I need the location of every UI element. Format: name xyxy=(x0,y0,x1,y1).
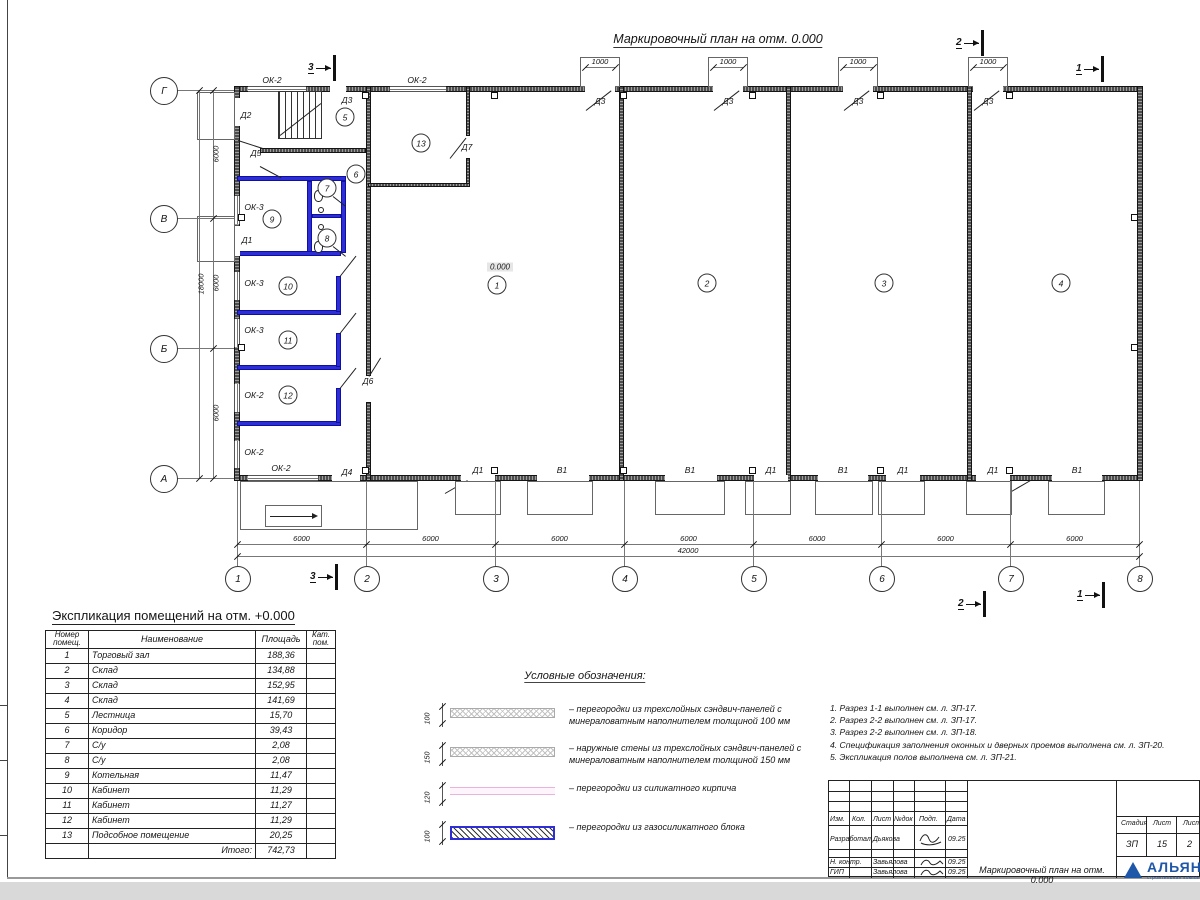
room-number-circle: 1 xyxy=(488,276,507,295)
legend-text: – перегородки из газосиликатного блока xyxy=(569,821,839,833)
col-area: Площадь xyxy=(256,631,307,649)
column-marker xyxy=(877,467,884,474)
section-marker-label: 1 xyxy=(1076,63,1082,75)
dim-line xyxy=(585,67,615,68)
legend-swatch-sandwich xyxy=(450,708,555,718)
section-marker-label: 1 xyxy=(1077,589,1083,601)
expl-cell: Коридор xyxy=(89,723,256,738)
expl-cell xyxy=(307,678,336,693)
plan-label: Д6 xyxy=(363,376,374,386)
dim-text-opening: 1000 xyxy=(980,57,997,66)
expl-cell: Лестница xyxy=(89,708,256,723)
stamp-name: Завьялова xyxy=(873,869,908,876)
fold-mark xyxy=(0,705,8,706)
col-cat: Кат. пом. xyxy=(307,631,336,649)
plan-label: Д7 xyxy=(462,142,473,152)
ramp-arrowhead xyxy=(312,513,318,519)
grid-bubble-col: 6 xyxy=(869,566,895,592)
expl-row: 3Склад152,95 xyxy=(46,678,336,693)
expl-cell: 188,36 xyxy=(256,648,307,663)
expl-cell: Торговый зал xyxy=(89,648,256,663)
expl-cell: Склад xyxy=(89,663,256,678)
expl-cell: 2 xyxy=(46,663,89,678)
room-number-circle: 3 xyxy=(875,274,894,293)
dim-text-bay: 6000 xyxy=(422,534,439,543)
plan-label: Д3 xyxy=(342,95,353,105)
stamp-col: Изм. xyxy=(830,816,845,823)
plan-label: Д2 xyxy=(241,110,252,120)
dim-text-bay: 6000 xyxy=(212,405,221,422)
grid-extension-line xyxy=(177,218,234,219)
company-logo: АЛЬЯНС строительная компания xyxy=(1124,859,1200,880)
section-marker-label: 2 xyxy=(958,598,964,610)
column-marker xyxy=(1131,214,1138,221)
expl-header-row: Номер помещ. Наименование Площадь Кат. п… xyxy=(46,631,336,649)
plan-label: В1 xyxy=(557,465,567,475)
section-marker: 3 xyxy=(310,564,338,590)
expl-cell: Склад xyxy=(89,693,256,708)
grid-extension-line xyxy=(1010,481,1011,566)
partition xyxy=(967,86,972,481)
expl-row: 8С/у2,08 xyxy=(46,753,336,768)
total-value: 742,73 xyxy=(256,843,307,858)
porch xyxy=(1048,481,1105,515)
expl-cell xyxy=(307,738,336,753)
room-number-circle: 12 xyxy=(279,386,298,405)
expl-cell: Подсобное помещение xyxy=(89,828,256,843)
stage-label: Лист xyxy=(1153,820,1171,827)
room-number-circle: 4 xyxy=(1052,274,1071,293)
room-number-circle: 9 xyxy=(263,210,282,229)
expl-row: 5Лестница15,70 xyxy=(46,708,336,723)
fold-mark xyxy=(0,835,8,836)
grid-extension-line xyxy=(237,481,238,566)
expl-cell: С/у xyxy=(89,738,256,753)
door-leaf xyxy=(340,256,357,277)
partition-room13 xyxy=(466,86,470,136)
section-arrow-icon xyxy=(966,604,981,605)
logo-subtitle: строительная компания xyxy=(1147,875,1200,880)
dim-text-bay: 6000 xyxy=(937,534,954,543)
plan-label: В1 xyxy=(685,465,695,475)
section-marker-label: 3 xyxy=(310,571,316,583)
note-line: 3. Разрез 2-2 выполнен см. л. ЗП-18. xyxy=(830,726,1165,738)
expl-cell xyxy=(307,783,336,798)
door-leaf xyxy=(586,90,612,110)
section-marker: 1 xyxy=(1077,582,1105,608)
expl-cell: 13 xyxy=(46,828,89,843)
plan-label: В1 xyxy=(838,465,848,475)
note-line: 1. Разрез 1-1 выполнен см. л. ЗП-17. xyxy=(830,702,1165,714)
plan-label: Д1 xyxy=(988,465,999,475)
expl-cell xyxy=(307,798,336,813)
legend: 100– перегородки из трехслойных сэндвич-… xyxy=(424,703,839,860)
stamp-role: Н. контр. xyxy=(830,859,862,866)
plan-label: ОК-2 xyxy=(407,75,426,85)
grid-bubble-col: 8 xyxy=(1127,566,1153,592)
stage-value: 15 xyxy=(1157,839,1167,849)
grid-extension-line xyxy=(495,481,496,566)
plan-label: ОК-3 xyxy=(244,325,263,335)
expl-cell: 152,95 xyxy=(256,678,307,693)
dim-text-opening: 1000 xyxy=(850,57,867,66)
expl-cell: 9 xyxy=(46,768,89,783)
column-marker xyxy=(238,214,245,221)
legend-text: – перегородки из силикатного кирпича xyxy=(569,782,839,794)
grid-extension-line xyxy=(1139,481,1140,566)
total-spacer xyxy=(46,843,89,858)
note-line: 5. Экспликация полов выполнена см. л. ЗП… xyxy=(830,751,1165,763)
section-marker-label: 3 xyxy=(308,62,314,74)
dim-line xyxy=(973,67,1003,68)
blue-wall xyxy=(336,276,341,312)
expl-cell: Кабинет xyxy=(89,813,256,828)
column-marker xyxy=(1131,344,1138,351)
expl-cell: 20,25 xyxy=(256,828,307,843)
expl-cell xyxy=(307,813,336,828)
stage-value: 2 xyxy=(1187,839,1192,849)
expl-row: 2Склад134,88 xyxy=(46,663,336,678)
plan-label: Д1 xyxy=(766,465,777,475)
expl-row: 6Коридор39,43 xyxy=(46,723,336,738)
plan-label: Д4 xyxy=(342,467,353,477)
column-marker xyxy=(491,92,498,99)
stamp-col: Кол. xyxy=(852,816,866,823)
plan-label: ОК-3 xyxy=(244,278,263,288)
signature xyxy=(917,829,945,847)
section-arrow-icon xyxy=(316,68,331,69)
door-leaf xyxy=(340,368,357,389)
room-number-circle: 7 xyxy=(318,179,337,198)
stamp-col: Лист xyxy=(873,816,891,823)
porch xyxy=(655,481,725,515)
grid-bubble-col: 4 xyxy=(612,566,638,592)
plan-label: ОК-2 xyxy=(262,75,281,85)
dim-line xyxy=(237,556,1140,557)
grid-extension-line xyxy=(624,481,625,566)
blue-wall xyxy=(237,365,341,370)
grid-bubble-row: Г xyxy=(150,77,178,105)
dim-text-opening: 1000 xyxy=(592,57,609,66)
legend-dim: 120 xyxy=(424,782,450,806)
expl-cell: 10 xyxy=(46,783,89,798)
expl-table-title: Экспликация помещений на отм. +0.000 xyxy=(52,608,295,625)
expl-cell: 39,43 xyxy=(256,723,307,738)
expl-cell xyxy=(307,753,336,768)
partition xyxy=(619,86,624,481)
plan-label: ОК-2 xyxy=(244,447,263,457)
blue-wall xyxy=(336,333,341,367)
expl-cell: 7 xyxy=(46,738,89,753)
wall-right xyxy=(1137,86,1143,481)
expl-cell: Склад xyxy=(89,678,256,693)
expl-cell xyxy=(307,828,336,843)
signature xyxy=(919,867,945,878)
grid-bubble-col: 5 xyxy=(741,566,767,592)
title-block: Изм. Кол. Лист №док Подп. Дата Разработа… xyxy=(828,780,1200,877)
window-ok2 xyxy=(234,384,240,412)
expl-cell: 8 xyxy=(46,753,89,768)
window-ok3 xyxy=(234,272,240,300)
note-line: 4. Спецификация заполнения оконных и две… xyxy=(830,739,1165,751)
dim-text-bay: 6000 xyxy=(293,534,310,543)
dim-text-bay: 6000 xyxy=(680,534,697,543)
section-marker-label: 2 xyxy=(956,37,962,49)
elevation-mark: 0.000 xyxy=(487,263,513,272)
expl-cell xyxy=(307,708,336,723)
expl-cell: 4 xyxy=(46,693,89,708)
expl-row: 9Котельная11,47 xyxy=(46,768,336,783)
legend-text: – наружные стены из трехслойных сэндвич-… xyxy=(569,742,839,766)
stamp-doc-title: Маркировочный план на отм. 0.000 xyxy=(969,865,1115,885)
ramp-arrow xyxy=(270,516,314,517)
grid-bubble-row: В xyxy=(150,205,178,233)
section-bar-icon xyxy=(983,591,986,617)
partition xyxy=(260,148,366,153)
expl-cell: 2,08 xyxy=(256,738,307,753)
window-ok2 xyxy=(390,86,446,92)
column-marker xyxy=(362,92,369,99)
expl-cell: 15,70 xyxy=(256,708,307,723)
stamp-name: Дьякова xyxy=(873,836,900,843)
window-ok3 xyxy=(234,319,240,347)
porch xyxy=(966,481,1012,515)
plan-label: Д5 xyxy=(251,148,262,158)
blue-wall xyxy=(341,181,346,253)
door-leaf xyxy=(844,90,870,110)
plan-label: В1 xyxy=(1072,465,1082,475)
expl-cell: 11 xyxy=(46,798,89,813)
dim-text-total: 18000 xyxy=(197,274,206,295)
expl-cell: 134,88 xyxy=(256,663,307,678)
expl-cell xyxy=(307,663,336,678)
expl-cell: Кабинет xyxy=(89,783,256,798)
room-number-circle: 2 xyxy=(698,274,717,293)
floor-plan: 0.000 ОК-2ОК-2Д3Д3Д3Д3Д3Д2Д5Д1ОК-3ОК-3ОК… xyxy=(0,0,1200,660)
section-arrow-icon xyxy=(1085,595,1100,596)
section-marker: 2 xyxy=(956,30,984,56)
plan-label: Д1 xyxy=(473,465,484,475)
expl-total-row: Итого: 742,73 xyxy=(46,843,336,858)
total-cat xyxy=(307,843,336,858)
legend-dim: 100 xyxy=(424,821,450,845)
porch xyxy=(745,481,791,515)
expl-cell: 11,29 xyxy=(256,813,307,828)
plan-label: ОК-3 xyxy=(244,202,263,212)
stamp-col: Дата xyxy=(947,816,965,823)
stamp-name: Завьялова xyxy=(873,859,908,866)
expl-cell: 6 xyxy=(46,723,89,738)
column-marker xyxy=(362,467,369,474)
grid-extension-line xyxy=(177,348,234,349)
col-number: Номер помещ. xyxy=(46,631,89,649)
expl-row: 13Подсобное помещение20,25 xyxy=(46,828,336,843)
section-bar-icon xyxy=(1102,582,1105,608)
window-ok2 xyxy=(234,441,240,468)
fold-mark xyxy=(0,760,8,761)
column-marker xyxy=(491,467,498,474)
stamp-date: 09.25 xyxy=(948,836,966,843)
stage-label: Листов xyxy=(1183,820,1200,827)
legend-item: 120– перегородки из силикатного кирпича xyxy=(424,782,839,806)
porch xyxy=(527,481,593,515)
logo-word: АЛЬЯНС xyxy=(1147,859,1200,875)
room-number-circle: 13 xyxy=(412,134,431,153)
grid-bubble-col: 2 xyxy=(354,566,380,592)
expl-row: 10Кабинет11,29 xyxy=(46,783,336,798)
legend-item: 150– наружные стены из трехслойных сэндв… xyxy=(424,742,839,766)
door-gap-d3 xyxy=(330,85,346,93)
expl-cell: 2,08 xyxy=(256,753,307,768)
expl-cell: Котельная xyxy=(89,768,256,783)
blue-wall xyxy=(237,421,341,426)
plan-label: Д1 xyxy=(242,235,253,245)
stamp-col: Подп. xyxy=(919,816,938,823)
plan-label: Д1 xyxy=(898,465,909,475)
room-number-circle: 8 xyxy=(318,229,337,248)
door-leaf xyxy=(714,90,740,110)
section-bar-icon xyxy=(1101,56,1104,82)
section-marker: 2 xyxy=(958,591,986,617)
expl-cell: 11,29 xyxy=(256,783,307,798)
blue-wall xyxy=(312,214,341,218)
partition xyxy=(786,86,791,481)
expl-cell: С/у xyxy=(89,753,256,768)
blue-wall xyxy=(237,251,341,256)
dim-text-total: 42000 xyxy=(678,546,699,555)
legend-title: Условные обозначения: xyxy=(524,670,645,683)
expl-cell: 11,47 xyxy=(256,768,307,783)
legend-text: – перегородки из трехслойных сэндвич-пан… xyxy=(569,703,839,727)
dim-text-bay: 6000 xyxy=(212,146,221,163)
blue-wall xyxy=(336,388,341,423)
expl-row: 11Кабинет11,27 xyxy=(46,798,336,813)
stamp-date: 09.25 xyxy=(948,859,966,866)
stage-value: ЗП xyxy=(1126,839,1138,849)
dim-line xyxy=(843,67,873,68)
expl-cell: 11,27 xyxy=(256,798,307,813)
notes: 1. Разрез 1-1 выполнен см. л. ЗП-17.2. Р… xyxy=(830,702,1165,763)
expl-cell xyxy=(307,693,336,708)
expl-cell: 5 xyxy=(46,708,89,723)
grid-bubble-row: Б xyxy=(150,335,178,363)
section-marker: 3 xyxy=(308,55,336,81)
expl-row: 4Склад141,69 xyxy=(46,693,336,708)
dim-text-bay: 6000 xyxy=(551,534,568,543)
dim-text-bay: 6000 xyxy=(1066,534,1083,543)
plan-label: ОК-2 xyxy=(271,463,290,473)
porch xyxy=(197,92,235,140)
grid-bubble-row: А xyxy=(150,465,178,493)
column-marker xyxy=(620,467,627,474)
partition xyxy=(366,86,371,376)
grid-extension-line xyxy=(366,481,367,566)
expl-cell: Кабинет xyxy=(89,798,256,813)
stamp-col: №док xyxy=(894,816,913,823)
expl-cell xyxy=(307,648,336,663)
legend-item: 100– перегородки из газосиликатного блок… xyxy=(424,821,839,845)
section-arrow-icon xyxy=(1084,69,1099,70)
col-name: Наименование xyxy=(89,631,256,649)
column-marker xyxy=(749,92,756,99)
expl-cell: 141,69 xyxy=(256,693,307,708)
expl-cell: 1 xyxy=(46,648,89,663)
expl-row: 1Торговый зал188,36 xyxy=(46,648,336,663)
room-number-circle: 5 xyxy=(336,108,355,127)
expl-row: 7С/у2,08 xyxy=(46,738,336,753)
dim-text-bay: 6000 xyxy=(809,534,826,543)
expl-row: 12Кабинет11,29 xyxy=(46,813,336,828)
porch xyxy=(815,481,873,515)
grid-extension-line xyxy=(177,90,234,91)
dim-text-bay: 6000 xyxy=(212,275,221,292)
logo-triangle-icon xyxy=(1124,862,1142,878)
room-number-circle: 10 xyxy=(279,277,298,296)
grid-extension-line xyxy=(753,481,754,566)
room-number-circle: 11 xyxy=(279,331,298,350)
stamp-role: Разработал xyxy=(830,836,871,843)
grid-bubble-col: 1 xyxy=(225,566,251,592)
partition-room13 xyxy=(368,183,470,187)
section-marker: 1 xyxy=(1076,56,1104,82)
dim-line xyxy=(713,67,743,68)
column-marker xyxy=(238,344,245,351)
column-marker xyxy=(1006,92,1013,99)
grid-extension-line xyxy=(881,481,882,566)
total-label: Итого: xyxy=(89,843,256,858)
dim-text-opening: 1000 xyxy=(720,57,737,66)
expl-cell xyxy=(307,723,336,738)
porch xyxy=(878,481,925,515)
section-arrow-icon xyxy=(964,43,979,44)
legend-swatch-brick xyxy=(450,787,555,795)
legend-dim: 150 xyxy=(424,742,450,766)
door-leaf xyxy=(340,313,357,334)
stamp-date: 09.25 xyxy=(948,869,966,876)
section-arrow-icon xyxy=(318,577,333,578)
expl-cell: 12 xyxy=(46,813,89,828)
room-number-circle: 6 xyxy=(347,165,366,184)
porch xyxy=(197,216,235,262)
column-marker xyxy=(749,467,756,474)
stage-label: Стадия xyxy=(1121,820,1147,827)
sink-icon xyxy=(318,207,324,213)
grid-extension-line xyxy=(177,478,234,479)
legend-swatch-gasblock xyxy=(450,826,555,840)
door-leaf xyxy=(974,90,1000,110)
legend-dim: 100 xyxy=(424,703,450,727)
legend-item: 100– перегородки из трехслойных сэндвич-… xyxy=(424,703,839,727)
grid-bubble-col: 3 xyxy=(483,566,509,592)
section-bar-icon xyxy=(981,30,984,56)
section-bar-icon xyxy=(333,55,336,81)
section-bar-icon xyxy=(335,564,338,590)
drawing-sheet: { "title": "Маркировочный план на отм. 0… xyxy=(0,0,1200,900)
column-marker xyxy=(620,92,627,99)
column-marker xyxy=(1006,467,1013,474)
column-marker xyxy=(877,92,884,99)
legend-swatch-sandwich xyxy=(450,747,555,757)
expl-table: Номер помещ. Наименование Площадь Кат. п… xyxy=(45,630,336,859)
stamp-role: ГИП xyxy=(830,869,844,876)
expl-cell xyxy=(307,768,336,783)
expl-cell: 3 xyxy=(46,678,89,693)
plan-label: ОК-2 xyxy=(244,390,263,400)
grid-bubble-col: 7 xyxy=(998,566,1024,592)
blue-wall xyxy=(237,310,341,315)
note-line: 2. Разрез 2-2 выполнен см. л. ЗП-17. xyxy=(830,714,1165,726)
dim-line xyxy=(237,544,1140,545)
